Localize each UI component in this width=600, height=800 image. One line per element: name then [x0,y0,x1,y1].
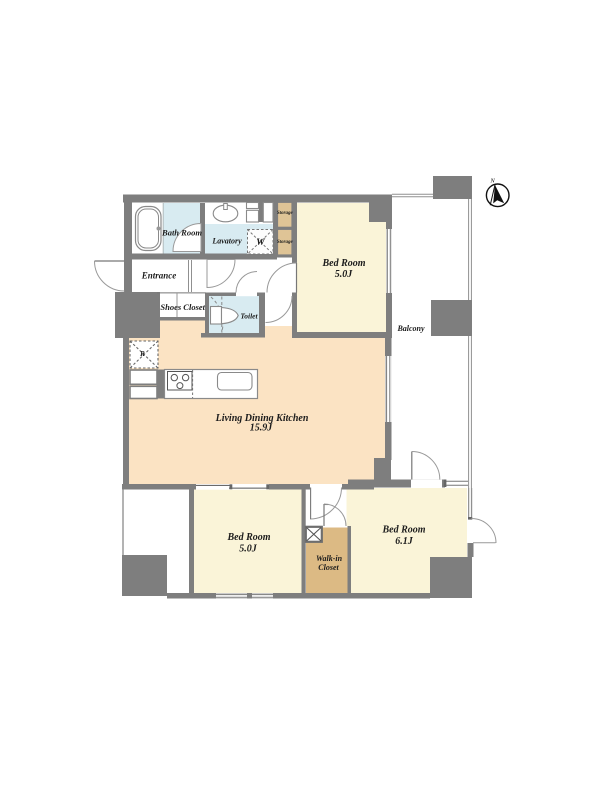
svg-text:Bed Room: Bed Room [381,525,425,536]
svg-text:N: N [489,178,495,185]
svg-text:Storage: Storage [277,240,294,245]
svg-text:Bath Room: Bath Room [161,228,202,238]
svg-text:Closet: Closet [318,563,339,572]
svg-text:Shoes Closet: Shoes Closet [160,302,205,312]
svg-text:W: W [256,238,265,248]
svg-text:6.1J: 6.1J [395,536,414,547]
svg-text:Balcony: Balcony [396,324,425,333]
svg-text:5.0J: 5.0J [335,269,354,280]
svg-text:Bed Room: Bed Room [226,532,270,543]
svg-text:Bed Room: Bed Room [321,258,365,269]
svg-text:Storage: Storage [277,211,294,216]
svg-text:Lavatory: Lavatory [211,237,242,246]
svg-text:Toilet: Toilet [240,312,258,321]
svg-text:15.9J: 15.9J [250,423,274,434]
svg-text:Walk-in: Walk-in [316,554,343,563]
svg-text:R: R [139,350,145,358]
svg-text:5.0J: 5.0J [239,544,258,555]
svg-text:Entrance: Entrance [141,270,177,280]
